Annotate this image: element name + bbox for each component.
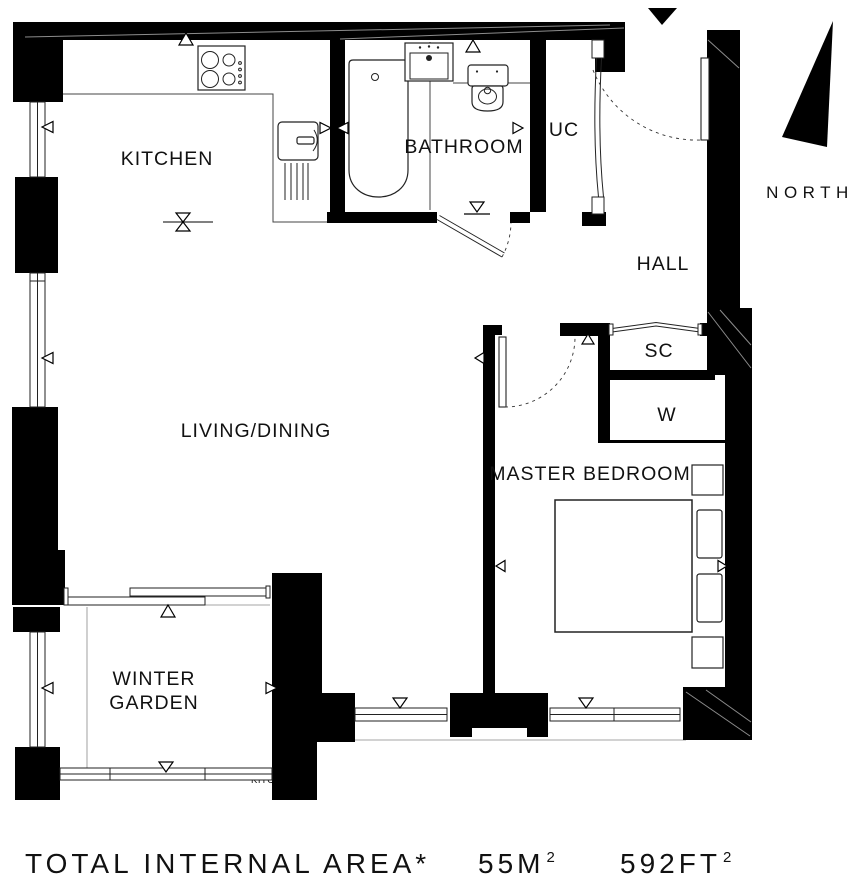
bathtub-icon	[349, 60, 408, 197]
wall-sc-bottom	[598, 370, 715, 380]
window-living-south	[355, 708, 447, 721]
wall-bedroom-door-header	[483, 325, 502, 335]
uc-label: UC	[549, 119, 579, 141]
basin-outer	[405, 43, 453, 81]
wall-bedroom-divider	[483, 335, 495, 693]
sink-tap-handle	[297, 137, 314, 144]
wall-uc-left	[530, 40, 546, 212]
sc-label: SC	[644, 340, 673, 362]
toilet-icon	[468, 65, 508, 111]
winter-garden-label-line2: GARDEN	[109, 692, 198, 714]
basin-dot	[437, 46, 439, 48]
sliding-door-cap	[64, 588, 68, 605]
area-metric-exponent: 2	[546, 849, 554, 866]
area-imperial-exponent: 2	[723, 849, 731, 866]
area-imperial: 592FT2	[620, 848, 731, 879]
basin-dot	[428, 45, 430, 47]
wall-left-block-b3	[13, 607, 60, 632]
wall-bathroom-bottom-right	[510, 212, 530, 223]
living-dining-label: LIVING/DINING	[181, 420, 332, 442]
bifold-door-cap	[609, 324, 613, 335]
winter-garden-label-line1: WINTER	[113, 668, 196, 690]
wall-wardrobe-bottom-line	[598, 440, 727, 443]
area-metric-value: 55M	[478, 848, 544, 879]
door-leaf	[499, 337, 506, 407]
floorplan-page: KITC	[0, 0, 861, 890]
basin-dot	[419, 46, 421, 48]
bathroom-sink-icon	[405, 43, 453, 81]
toilet-dot	[496, 70, 498, 72]
toilet-dot	[476, 70, 478, 72]
north-label: NORTH	[766, 183, 854, 202]
wall-wintergarden-block	[272, 693, 355, 742]
wall-bathroom-bottom	[327, 212, 437, 223]
footer: TOTAL INTERNAL AREA* 55M2 592FT2	[25, 848, 731, 879]
bedside-table	[692, 465, 723, 495]
door-cap	[592, 197, 604, 214]
door-leaf	[701, 58, 709, 140]
pillow	[697, 510, 722, 558]
kitchen-label: KITCHEN	[121, 148, 214, 170]
wall-sc-top-bar	[560, 323, 610, 336]
wall-south-pillar-notch	[472, 728, 527, 737]
wall-wintergarden-column-low	[272, 742, 317, 800]
window-living-left	[30, 273, 45, 407]
floorplan-drawing: KITC	[0, 0, 861, 890]
bedside-table	[692, 637, 723, 668]
master-bedroom-label: MASTER BEDROOM	[489, 463, 690, 485]
door-cap	[592, 40, 604, 58]
hall-label: HALL	[637, 253, 690, 275]
wall-right-hatched-block	[707, 308, 752, 375]
wall-wintergarden-column	[272, 573, 322, 693]
sliding-panel	[67, 597, 205, 605]
wall-left-block-a	[15, 177, 58, 273]
bathroom-label: BATHROOM	[404, 136, 523, 158]
total-area-title: TOTAL INTERNAL AREA*	[25, 848, 430, 879]
wall-wardrobe-left	[598, 380, 610, 440]
window-kitchen-left	[30, 102, 45, 177]
basin-tap	[426, 55, 432, 61]
wall-left-block-b2	[12, 550, 65, 605]
wall-bottomleft-block	[15, 747, 60, 800]
wall-right-lower	[725, 375, 752, 687]
pillow	[697, 574, 722, 622]
area-metric: 55M2	[478, 848, 555, 879]
toilet-cistern	[468, 65, 508, 86]
toilet-bowl	[472, 86, 503, 111]
area-imperial-value: 592FT	[620, 848, 721, 879]
window-wintergarden-left	[30, 632, 45, 747]
sliding-door-cap	[266, 586, 270, 598]
wall-left-block-b	[12, 407, 58, 550]
kitchen-hob-icon	[198, 46, 245, 90]
sliding-panel	[130, 588, 268, 596]
bathtub-outline	[349, 60, 408, 197]
wardrobe-label: W	[657, 404, 676, 426]
window-bedroom-south	[550, 708, 680, 721]
bifold-door-cap	[698, 324, 702, 335]
bed-mattress	[555, 500, 692, 632]
wall-corner-topleft	[13, 22, 63, 102]
wall-right-upper	[707, 30, 740, 308]
